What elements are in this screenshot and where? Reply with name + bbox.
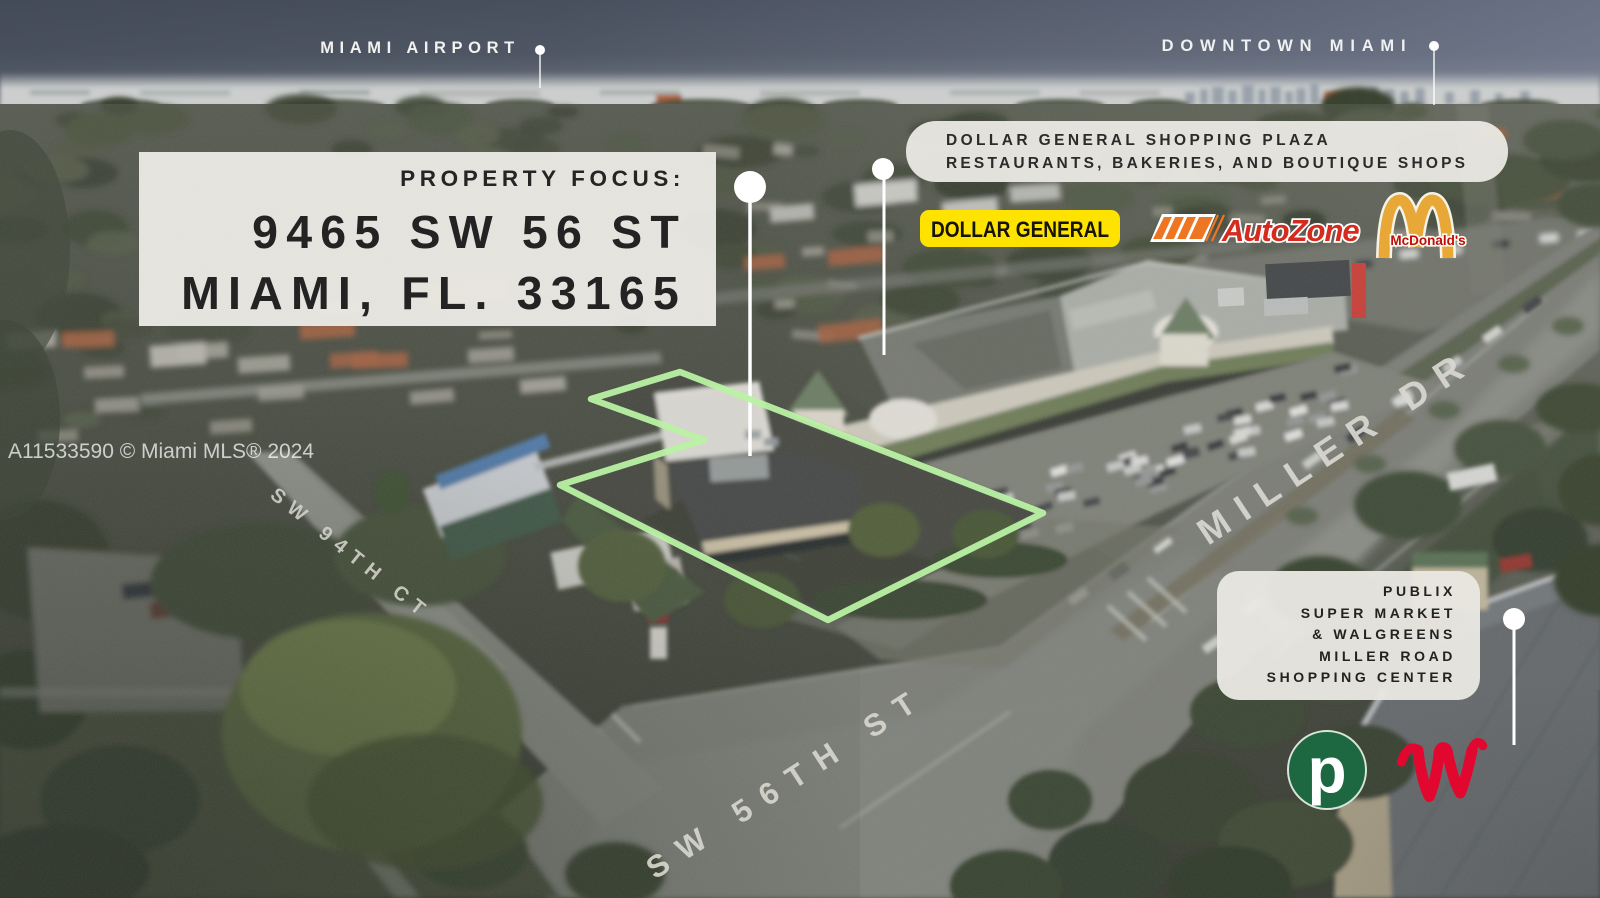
- svg-text:& WALGREENS: & WALGREENS: [1312, 626, 1456, 642]
- svg-text:SHOPPING CENTER: SHOPPING CENTER: [1267, 669, 1456, 685]
- svg-text:MILLER ROAD: MILLER ROAD: [1319, 648, 1456, 664]
- svg-text:McDonald's: McDonald's: [1390, 233, 1465, 248]
- svg-text:DOLLAR GENERAL: DOLLAR GENERAL: [931, 217, 1109, 242]
- svg-text:SUPER MARKET: SUPER MARKET: [1301, 605, 1456, 621]
- svg-text:A11533590 © Miami MLS® 2024: A11533590 © Miami MLS® 2024: [8, 440, 314, 463]
- svg-text:RESTAURANTS, BAKERIES, AND BOU: RESTAURANTS, BAKERIES, AND BOUTIQUE SHOP…: [946, 155, 1468, 172]
- svg-text:DOWNTOWN MIAMI: DOWNTOWN MIAMI: [1162, 37, 1413, 55]
- svg-text:MIAMI, FL. 33165: MIAMI, FL. 33165: [181, 267, 687, 319]
- svg-text:p: p: [1307, 734, 1346, 806]
- svg-text:9465 SW 56 ST: 9465 SW 56 ST: [252, 206, 687, 258]
- svg-text:PROPERTY FOCUS:: PROPERTY FOCUS:: [400, 166, 685, 191]
- svg-text:MIAMI AIRPORT: MIAMI AIRPORT: [320, 39, 520, 57]
- svg-text:DOLLAR GENERAL SHOPPING PLAZA: DOLLAR GENERAL SHOPPING PLAZA: [946, 132, 1331, 149]
- svg-text:AutoZone: AutoZone: [1221, 213, 1359, 248]
- svg-text:PUBLIX: PUBLIX: [1383, 583, 1456, 599]
